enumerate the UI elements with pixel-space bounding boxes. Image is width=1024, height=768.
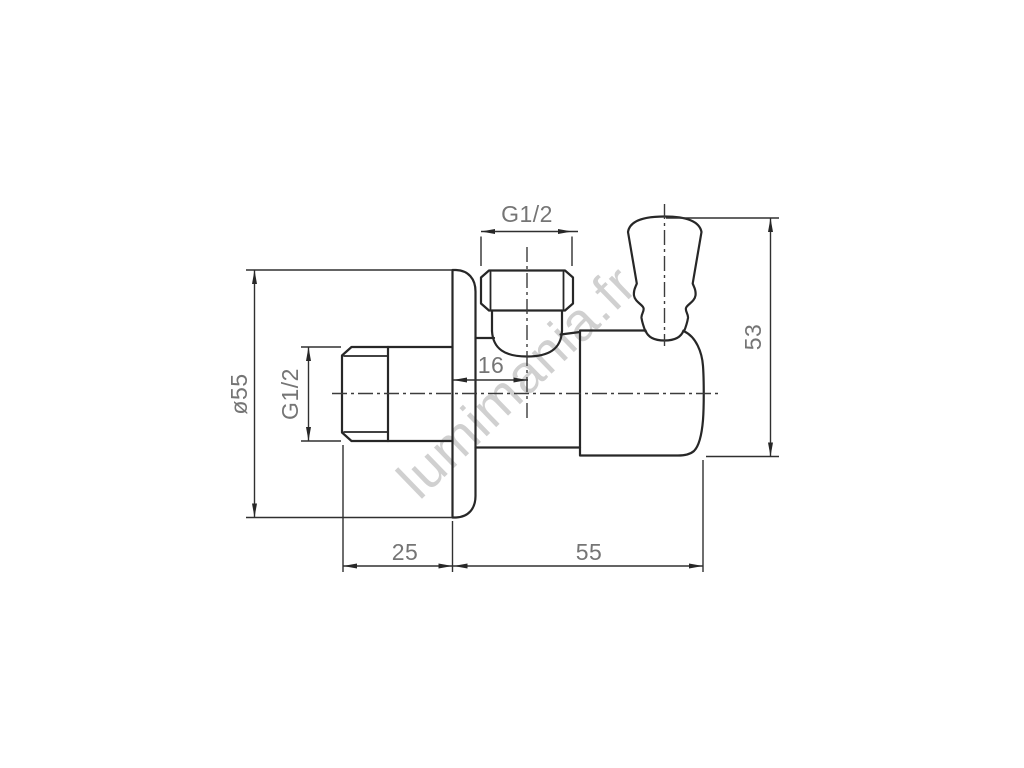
dim-flange-diameter-label: ø55 [226, 373, 252, 414]
dim-outlet-thread-label: G1/2 [501, 201, 553, 227]
dim-wall-to-axis-label: 16 [478, 352, 505, 378]
arrow-right-icon [689, 564, 703, 569]
arrow-up-icon [768, 218, 773, 232]
dim-outlet-thread: G1/2 [481, 201, 578, 266]
arrow-up-icon [306, 347, 311, 361]
arrow-right-icon [439, 564, 453, 569]
valve-technical-drawing: lumimania.fr [0, 0, 1024, 768]
dim-inlet-thread: G1/2 [277, 347, 341, 441]
watermark-text: lumimania.fr [386, 254, 648, 510]
drawing-canvas: lumimania.fr [0, 0, 1024, 768]
arrow-left-icon [343, 564, 357, 569]
dim-inlet-thread-label: G1/2 [277, 368, 303, 420]
arrow-down-icon [768, 443, 773, 457]
arrow-up-icon [252, 270, 257, 284]
arrow-left-icon [454, 564, 468, 569]
dim-inlet-length-label: 25 [392, 539, 419, 565]
arrow-right-icon [558, 229, 572, 234]
dim-body-length-label: 55 [576, 539, 603, 565]
arrow-down-icon [252, 504, 257, 518]
dim-overall-height: 53 [666, 218, 779, 457]
arrow-left-icon [453, 378, 467, 383]
arrow-left-icon [481, 229, 495, 234]
arrow-down-icon [306, 427, 311, 441]
dim-overall-height-label: 53 [740, 324, 766, 351]
